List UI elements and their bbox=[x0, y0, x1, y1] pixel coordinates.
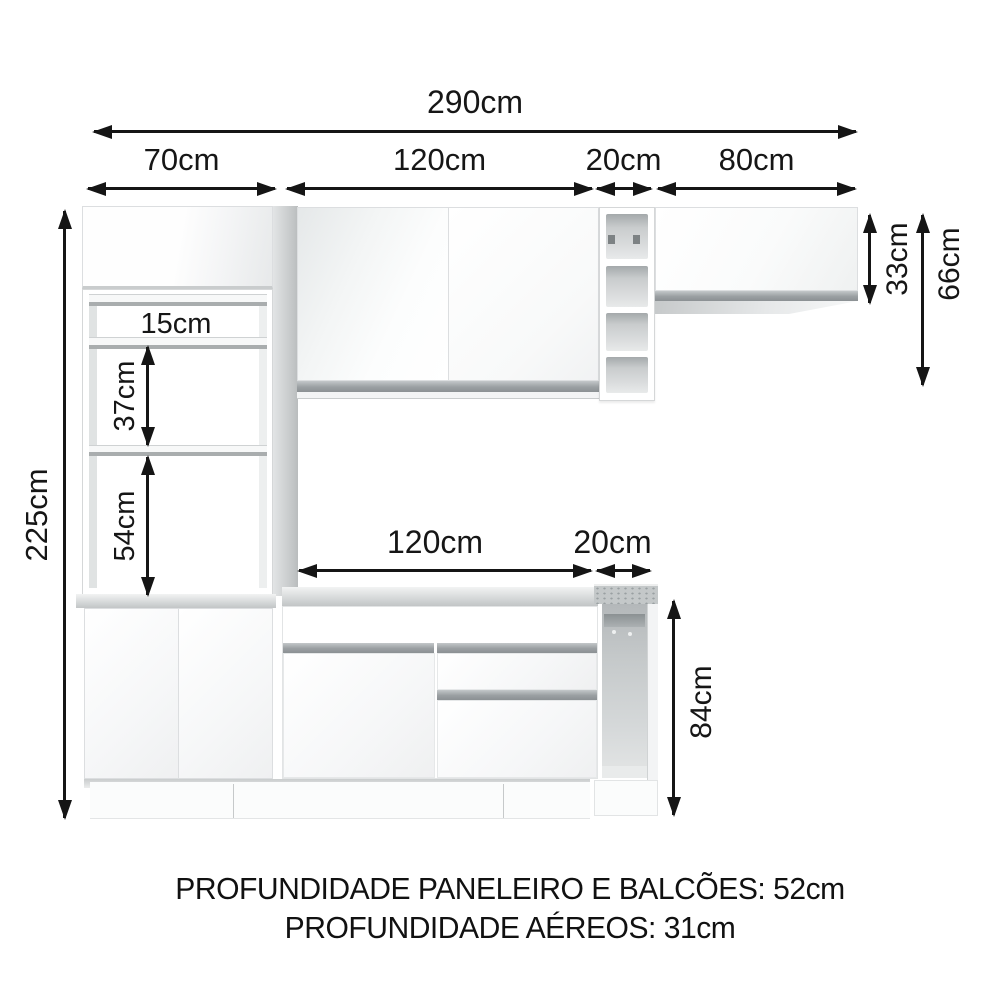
dim-arrow-aereo-total-height bbox=[921, 215, 924, 385]
aereo-right-door bbox=[655, 207, 858, 291]
nicho-base-countertop bbox=[594, 584, 658, 604]
aereo-mid-bottom-lip bbox=[297, 392, 599, 399]
dim-arrow-aereo-door-height bbox=[868, 215, 871, 303]
dim-label-total-height: 225cm bbox=[21, 450, 51, 580]
dim-label-total-width: 290cm bbox=[375, 86, 575, 118]
dim-arrow-balcao-nicho-width bbox=[597, 569, 650, 572]
nicho-base-floor bbox=[602, 766, 647, 778]
nicho-base-rail-hole bbox=[612, 630, 616, 634]
dim-arrow-total-width bbox=[94, 130, 856, 133]
niche-hinge bbox=[633, 235, 640, 244]
dim-arrow-aereo-width bbox=[287, 187, 592, 190]
dim-arrow-shelf-gap-bottom bbox=[146, 457, 149, 595]
aereo-mid-door-left bbox=[297, 207, 449, 381]
dim-arrow-nicho-width bbox=[597, 187, 651, 190]
paneleiro-base-door-right bbox=[178, 608, 273, 779]
nicho-base-rail-hole bbox=[628, 632, 632, 636]
dim-arrow-paneleiro-width bbox=[88, 187, 275, 190]
footer-depth-paneleiro-balcoes: PROFUNDIDADE PANELEIRO E BALCÕES: 52cm bbox=[25, 872, 995, 906]
open-niche bbox=[606, 313, 648, 351]
dim-arrow-shelf-gap-mid bbox=[146, 347, 149, 445]
nicho-base-plinth bbox=[594, 780, 658, 816]
dim-arrow-balcao-width bbox=[299, 569, 591, 572]
nicho-base-rail bbox=[604, 614, 645, 627]
dim-label-shelf-gap-top: 15cm bbox=[131, 310, 221, 339]
balcao-drawer-handle-profile bbox=[437, 690, 597, 700]
dim-label-balcao-height: 84cm bbox=[687, 647, 717, 757]
niche-hinge bbox=[608, 235, 615, 244]
paneleiro-shelf bbox=[89, 294, 267, 306]
balcao-door-handle-profile bbox=[283, 643, 434, 653]
nicho-base-cavity bbox=[602, 604, 647, 772]
nicho-base-right-wall bbox=[647, 604, 658, 782]
dim-label-aereo-door-height: 33cm bbox=[883, 204, 913, 314]
footer-depth-aereos: PROFUNDIDADE AÉREOS: 31cm bbox=[25, 911, 995, 945]
aereo-mid-handle-profile bbox=[297, 381, 599, 392]
paneleiro-countertop bbox=[76, 594, 276, 608]
plinth-seam bbox=[233, 784, 234, 818]
dim-label-aereo-total-height: 66cm bbox=[935, 209, 965, 319]
dim-label-paneleiro-width: 70cm bbox=[88, 144, 275, 175]
balcao-drawer-bottom bbox=[437, 700, 597, 778]
dim-label-shelf-gap-bottom: 54cm bbox=[111, 471, 141, 581]
balcao-drawer-top bbox=[437, 653, 597, 690]
open-niche bbox=[606, 266, 648, 307]
dim-label-shelf-gap-mid: 37cm bbox=[111, 341, 141, 451]
aereo-right-bottom-wedge bbox=[655, 301, 858, 314]
open-niche bbox=[606, 357, 648, 393]
dim-arrow-aereo-right-width bbox=[658, 187, 855, 190]
plinth bbox=[90, 782, 590, 819]
aereo-mid-door-right bbox=[448, 207, 599, 381]
dim-label-balcao-nicho-width: 20cm bbox=[540, 526, 685, 558]
balcao-countertop bbox=[282, 587, 598, 606]
balcao-door bbox=[283, 653, 435, 778]
dim-label-balcao-width: 120cm bbox=[330, 526, 540, 558]
plinth-seam bbox=[503, 784, 504, 818]
aereo-right-handle-profile bbox=[655, 291, 858, 301]
dim-label-aereo-right-width: 80cm bbox=[658, 144, 855, 175]
paneleiro-top-door bbox=[82, 206, 273, 289]
paneleiro-base-door-left bbox=[84, 608, 179, 779]
dim-arrow-total-height bbox=[63, 211, 66, 818]
paneleiro-side-panel bbox=[272, 206, 298, 596]
dim-arrow-balcao-height bbox=[672, 601, 675, 815]
kitchen-dimension-diagram: 290cm 70cm 120cm 20cm 80cm 225cm 15cm 37… bbox=[0, 0, 1000, 1000]
balcao-drawer-handle-profile bbox=[437, 643, 597, 653]
